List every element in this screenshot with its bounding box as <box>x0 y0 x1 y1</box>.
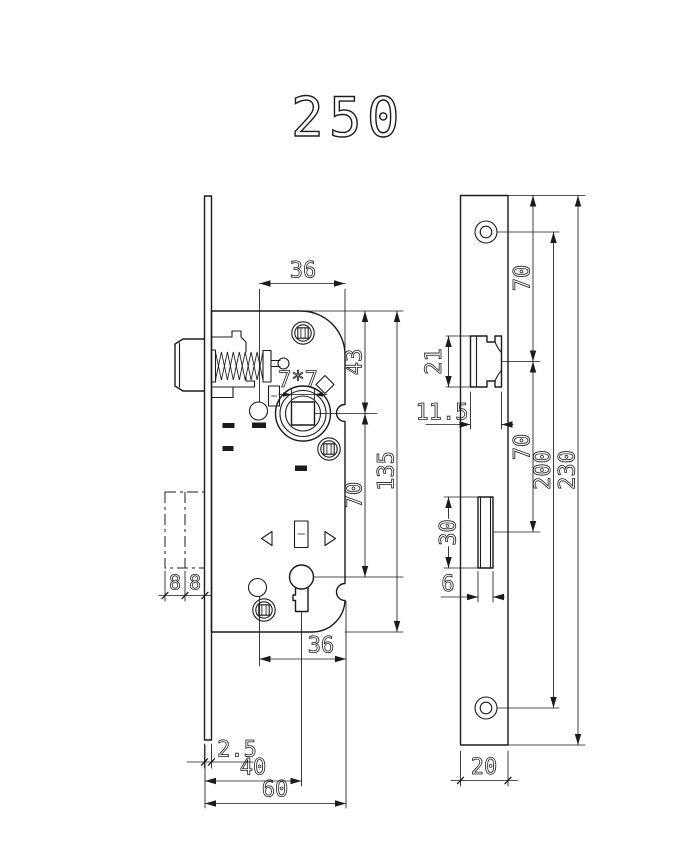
latch-bolt-side <box>175 339 205 391</box>
dim-21: 21 <box>422 348 447 375</box>
side-view-dimensions: 36 7*7 43 70 135 8 8 36 <box>159 259 403 809</box>
dim-8-left: 8 <box>169 571 181 595</box>
screw-post-bottom <box>253 599 275 621</box>
faceplate-edge <box>205 196 212 740</box>
dim-30: 30 <box>437 519 462 546</box>
lock-body-side-view: 36 7*7 43 70 135 8 8 36 <box>159 196 403 808</box>
dim-43: 43 <box>343 349 368 376</box>
drawing-title: 250 <box>291 86 405 149</box>
screw-post-right <box>318 438 340 460</box>
title-block: 250 <box>291 86 405 149</box>
arrow-left-icon <box>262 532 273 546</box>
dim-230: 230 <box>556 450 581 490</box>
arrow-right-icon <box>325 532 336 546</box>
drawing-sheet: 250 <box>0 0 681 845</box>
dim-20: 20 <box>471 755 498 780</box>
faceplate-front-view: 21 11.5 30 6 70 70 200 <box>416 196 585 787</box>
dim-7x7: 7*7 <box>278 368 318 393</box>
dim-200: 200 <box>531 450 556 490</box>
dim-70-left: 70 <box>343 482 368 509</box>
screw-post-top <box>292 322 314 344</box>
dim-36-top: 36 <box>290 259 317 284</box>
dim-60: 60 <box>262 778 289 803</box>
dim-135: 135 <box>375 451 400 491</box>
dim-36-bottom: 36 <box>308 634 335 659</box>
keyhole <box>290 565 314 612</box>
screw-hole-bottom <box>475 697 497 719</box>
latch-bolt-front <box>471 336 502 387</box>
dim-6: 6 <box>441 572 454 597</box>
rivets <box>223 423 308 472</box>
deadbolt-slot <box>478 497 493 568</box>
dim-8-right: 8 <box>189 571 201 595</box>
faceplate-outline <box>461 196 509 746</box>
front-view-dimensions: 21 11.5 30 6 70 70 200 <box>416 196 585 787</box>
technical-drawing: 250 <box>0 0 681 845</box>
screw-hole-top <box>475 221 497 243</box>
dim-11-5: 11.5 <box>416 401 469 426</box>
deadbolt-hidden-outline <box>165 492 205 568</box>
pin-holes <box>249 402 268 597</box>
dim-70-upper: 70 <box>511 265 536 292</box>
